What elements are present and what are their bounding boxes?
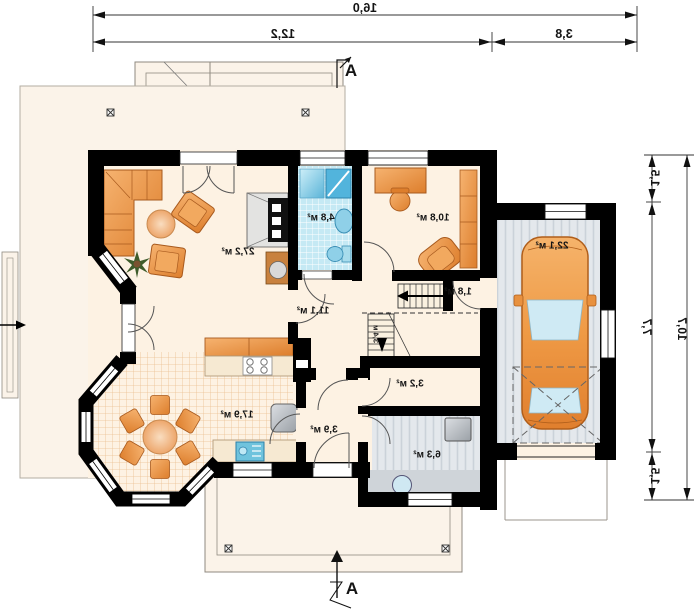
room-label-wc: 3,2 м² bbox=[396, 379, 423, 390]
coffee-table bbox=[147, 210, 175, 238]
shower-tray bbox=[300, 169, 324, 198]
dim-top-right: 3,8 bbox=[555, 27, 572, 41]
side-mirror bbox=[587, 295, 596, 306]
dim-right-top: 1,5 bbox=[648, 170, 662, 187]
room-label-bathroom: 4,8 м² bbox=[307, 213, 334, 224]
dim-top-total: 16,0 bbox=[353, 1, 377, 15]
room-label-garage: 22,1 м² bbox=[536, 241, 569, 252]
floor-plan: 16,0 12,2 3,8 1,5 7,7 10,7 1,5 27,2 м² 4… bbox=[0, 0, 700, 610]
wardrobe bbox=[460, 170, 477, 268]
windshield bbox=[527, 300, 583, 340]
stair-length-label: 3,4 м bbox=[372, 325, 381, 343]
cross-marker-icon bbox=[107, 109, 114, 116]
room-label-vestibule: 3,9 м² bbox=[310, 425, 337, 436]
toilet bbox=[327, 246, 351, 262]
washbasin bbox=[335, 209, 353, 233]
window bbox=[601, 310, 615, 358]
cross-marker-icon bbox=[302, 109, 309, 116]
window bbox=[408, 493, 452, 506]
cross-marker-icon bbox=[442, 545, 449, 552]
dim-right-total: 10,7 bbox=[675, 317, 689, 340]
section-letter-top: A bbox=[345, 61, 357, 81]
room-label-hall: 11,1 м² bbox=[297, 306, 329, 317]
cross-marker-icon bbox=[225, 545, 232, 552]
section-letter-bottom: A bbox=[346, 579, 358, 599]
window bbox=[545, 204, 586, 219]
boiler bbox=[393, 476, 412, 495]
side-mirror bbox=[514, 295, 523, 306]
dim-top-left: 12,2 bbox=[271, 27, 295, 41]
cooktop bbox=[243, 357, 272, 375]
dim-right-middle: 7,7 bbox=[640, 319, 654, 336]
floor-plan-drawing bbox=[0, 0, 700, 610]
dining-table bbox=[143, 420, 177, 454]
fireplace bbox=[247, 193, 288, 247]
window bbox=[233, 463, 272, 477]
room-label-living-room: 27,2 м² bbox=[222, 247, 255, 258]
window bbox=[368, 151, 428, 165]
washer bbox=[445, 418, 471, 441]
sink bbox=[236, 442, 264, 461]
garage-apron bbox=[505, 460, 607, 520]
dim-right-bottom: 1,5 bbox=[648, 468, 662, 485]
garage-car bbox=[514, 237, 596, 429]
armchair bbox=[148, 244, 186, 278]
room-label-office: 10,8 м² bbox=[417, 213, 450, 224]
room-label-utility: 6,3 м² bbox=[413, 450, 440, 461]
room-label-pantry: 1,8 м² bbox=[444, 287, 471, 298]
desk-chair bbox=[390, 188, 410, 211]
window bbox=[300, 151, 345, 165]
room-label-kitchen: 17,9 м² bbox=[221, 410, 254, 421]
